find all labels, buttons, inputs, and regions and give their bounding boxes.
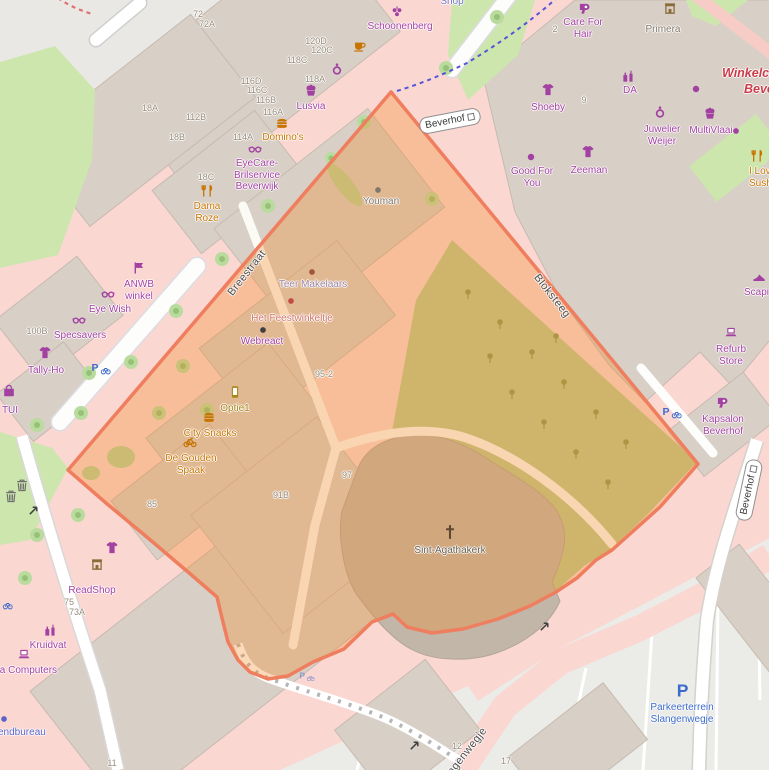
webreact-icon: [259, 326, 267, 334]
da-label: DA: [623, 85, 637, 97]
house-number-2: 2: [552, 24, 557, 34]
shop-partial-label: Shop: [440, 0, 463, 8]
house-number-112B: 112B: [186, 112, 206, 122]
house-number-18C: 18C: [198, 172, 215, 182]
bike-parking-left-icon: P: [92, 360, 111, 375]
winkelcentrum-line1-label: Winkelcentrum: [722, 66, 769, 80]
house-number-17: 17: [501, 756, 511, 766]
scapino-label: Scapino: [744, 287, 769, 299]
house-number-100B: 100B: [26, 326, 47, 336]
house-number-116C: 116C: [247, 85, 268, 95]
svg-text:P: P: [92, 363, 99, 374]
youman-icon: [374, 186, 382, 194]
tally-ho-icon: [39, 347, 52, 360]
dama-roze-label: DamaRoze: [194, 201, 221, 224]
kruidvat-label: Kruidvat: [30, 640, 67, 652]
lusvia-icon: [305, 84, 318, 97]
teer-makelaars-icon: [308, 268, 316, 276]
optie1-icon: [229, 386, 242, 399]
house-number-11: 11: [107, 758, 116, 768]
youman-label: Youman: [363, 196, 399, 208]
specsavers-label: Specsavers: [54, 330, 106, 342]
endbureau-icon: [0, 715, 8, 723]
readshop-clothes-icon: [106, 542, 119, 555]
house-number-72: 72: [193, 9, 203, 19]
post-point-icon: [91, 558, 104, 571]
house-number-75: 75: [64, 597, 74, 607]
house-number-114A: 114A: [233, 132, 253, 142]
house-number-85: 85: [147, 499, 157, 509]
map-canvas[interactable]: SchoonenbergShopCare ForHairPrimeraDASho…: [0, 0, 769, 770]
house-number-120C: 120C: [311, 45, 333, 55]
ta-computers-icon: [18, 648, 31, 661]
shoeby-icon: [542, 84, 555, 97]
bike-parking-right-icon: P: [663, 404, 682, 419]
ta-computers-label: ta Computers: [0, 665, 57, 677]
good-for-you-icon: [527, 153, 536, 162]
house-number-116A: 116A: [263, 107, 283, 117]
schoonenberg-label: Schoonenberg: [367, 21, 432, 33]
endbureau-label: endbureau: [0, 727, 46, 739]
zeeman-label: Zeeman: [571, 165, 608, 177]
juwelier-weijer-icon: [654, 106, 667, 119]
juwelier-weijer-label: JuwelierWeijer: [644, 124, 681, 147]
eyecare-brilservice-icon: [249, 143, 262, 156]
i-love-sushi-label: I LoveSushi: [749, 166, 769, 189]
winkelcentrum-line2-label: Beverhof: [744, 82, 769, 96]
het-feestwinkeltje-icon: [287, 297, 295, 305]
cafe-icon: [354, 40, 367, 53]
optie1-label: Optie1: [220, 403, 249, 415]
house-number-118A: 118A: [305, 74, 325, 84]
specsavers-icon: [73, 314, 86, 327]
house-number-18A: 18A: [142, 103, 158, 113]
house-number-72A: 72A: [199, 19, 215, 29]
tui-label: TUI: [2, 405, 18, 417]
house-number-18B: 18B: [169, 132, 185, 142]
oneway-arrow-2-icon: [409, 739, 422, 752]
dama-roze-icon: [201, 185, 214, 198]
scapino-icon: [753, 270, 766, 283]
kapsalon-beverhof-icon: [717, 396, 730, 409]
kruidvat-icon: [44, 624, 57, 637]
house-number-73A: 73A: [69, 607, 85, 617]
de-gouden-spaak-icon: [184, 436, 197, 449]
oneway-arrow-1-icon: [28, 504, 41, 517]
house-number-118C: 118C: [287, 55, 308, 65]
multivlaai-icon: [704, 107, 717, 120]
care-for-hair-icon: [579, 2, 592, 15]
street-label-bloksteeg: Bloksteeg: [531, 272, 572, 320]
readshop-label: ReadShop: [68, 585, 115, 597]
multivlaai-label: MultiVlaai: [689, 125, 732, 137]
tui-icon: [3, 385, 16, 398]
street-label-beverhof-top: Beverhof: [418, 107, 482, 136]
gate-icon: [749, 465, 757, 473]
anwb-winkel-label: ANWBwinkel: [124, 279, 154, 302]
lusvia-label: Lusvia: [297, 101, 326, 113]
het-feestwinkeltje-label: Het Feestwinkeltje: [251, 313, 333, 325]
house-number-91B: 91B: [273, 490, 289, 500]
bike-parking-faint-icon: P: [300, 670, 315, 682]
eyecare-brilservice-label: EyeCare-BrilserviceBeverwijk: [234, 158, 280, 193]
eye-wish-icon: [102, 288, 115, 301]
refurb-store-label: RefurbStore: [716, 344, 746, 367]
shop-node-1-icon: [692, 85, 701, 94]
shop-node-2-icon: [732, 127, 740, 135]
shoeby-label: Shoeby: [531, 102, 565, 114]
de-gouden-spaak-label: De GoudenSpaak: [165, 453, 216, 476]
house-number-9: 9: [581, 95, 586, 105]
street-label-breestraat: Breestraat: [225, 248, 268, 299]
care-for-hair-label: Care ForHair: [563, 17, 602, 40]
da-icon: [622, 70, 635, 83]
svg-text:P: P: [663, 407, 670, 418]
house-number-12: 12: [452, 741, 462, 751]
good-for-you-label: Good ForYou: [511, 166, 553, 189]
dominos-label: Domino's: [262, 132, 303, 144]
svg-text:P: P: [0, 598, 1, 609]
house-number-116B: 116B: [256, 95, 276, 105]
gate-icon: [467, 113, 475, 121]
svg-text:P: P: [300, 671, 306, 680]
teer-makelaars-label: Teer Makelaars: [279, 279, 347, 291]
dominos-icon: [276, 117, 289, 130]
waste-basket-2-icon: [5, 490, 18, 503]
street-label-beverhof-right: Beverhof: [734, 458, 764, 522]
bike-parking-corner-icon: P: [0, 595, 13, 610]
primera-icon: [664, 2, 677, 15]
kapsalon-beverhof-label: KapsalonBeverhof: [702, 414, 744, 437]
city-snacks-icon: [203, 411, 216, 424]
sint-agathakerk-icon: [442, 524, 458, 540]
jewelry-shop-icon: [331, 63, 344, 76]
primera-label: Primera: [645, 24, 680, 36]
map-labels-layer: SchoonenbergShopCare ForHairPrimeraDASho…: [0, 0, 769, 770]
house-number-97: 97: [342, 470, 352, 480]
eye-wish-label: Eye Wish: [89, 304, 131, 316]
svg-text:P: P: [677, 681, 689, 700]
sint-agathakerk-label: Sint-Agathakerk: [414, 545, 485, 557]
parkeerterrein-slangenwegje-label: ParkeerterreinSlangenwegje: [650, 702, 713, 725]
i-love-sushi-icon: [751, 150, 764, 163]
house-number-95-2: 95-2: [315, 369, 333, 379]
refurb-store-icon: [725, 326, 738, 339]
zeeman-icon: [582, 146, 595, 159]
parkeerterrein-slangenwegje-icon: P: [676, 681, 691, 700]
schoonenberg-icon: [391, 6, 404, 19]
anwb-winkel-icon: [133, 262, 146, 275]
oneway-arrow-3-icon: [539, 620, 552, 633]
webreact-label: Webreact: [241, 336, 284, 348]
tally-ho-label: Tally-Ho: [28, 365, 64, 377]
